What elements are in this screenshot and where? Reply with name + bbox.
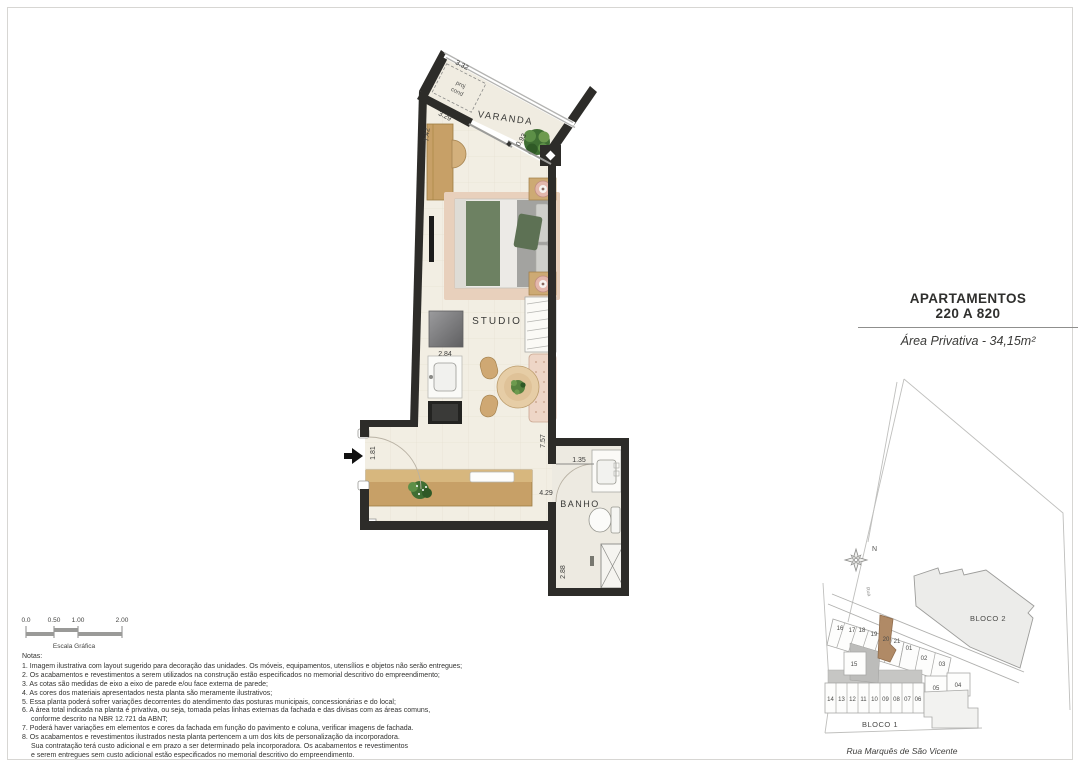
floor-plan-drawing: proj cond [338,24,658,636]
floorplan-page: { "title_block": { "line1": "APARTAMENTO… [0,0,1080,767]
scale-segment [78,632,122,636]
notes-title: Notas: [22,653,582,662]
unit-label: 19 [871,632,878,638]
north-label: N [872,546,877,553]
title-line2: 220 A 820 [858,306,1078,321]
foyer-counter [366,470,532,506]
unit-label: 03 [939,662,946,668]
dim-left-wall: 7.42 [424,128,432,142]
note-line: e serem entregues sem custo adicional es… [22,752,582,761]
dim-kitchen: 2.84 [438,351,452,358]
title-divider [858,327,1078,328]
private-area-label: Área Privativa - 34,15m² [858,334,1078,348]
unit-label: 09 [882,697,889,703]
unit-label: 05 [933,686,940,692]
wall-tv [429,216,434,262]
unit-label: 06 [915,697,922,703]
scale-caption: Escala Gráfica [53,643,96,650]
site-map: Rua N BLOCO 2 [818,370,1080,765]
counter-tray [470,472,514,482]
unit-label: 16 [837,626,844,632]
bathroom-vanity [592,450,621,492]
note-line: 3. As cotas são medidas de eixo a eixo d… [22,681,582,690]
unit-label: 11 [860,697,867,703]
unit-label: 12 [849,697,856,703]
entrance-arrow-icon [344,448,363,464]
unit-label: 04 [955,683,962,689]
scale-tick-label: 1.00 [72,617,85,624]
unit-label: 17 [849,628,856,634]
note-line: conforme descrito na NBR 12.721 da ABNT; [22,716,582,725]
cooktop-glass [432,404,458,421]
unit-label: 01 [906,646,913,652]
note-line: Sua contratação terá custo adicional e e… [22,743,582,752]
unit-label: 18 [859,628,866,634]
unit-label: 13 [838,697,845,703]
unit-label: 20 [883,637,890,643]
note-line: 8. Os acabamentos e revestimentos ilustr… [22,734,582,743]
room-label-studio: STUDIO [472,316,522,327]
rua-access-label: Rua [864,587,872,598]
unit-label: 07 [904,697,911,703]
entrance-door-jamb [358,481,369,490]
unit-label: 02 [921,656,928,662]
title-line1: APARTAMENTOS [858,291,1078,306]
scale-tick-label: 0.50 [48,617,61,624]
dim-bath-width: 1.35 [572,457,586,464]
note-line: 5. Essa planta poderá sofrer variações d… [22,699,582,708]
title-block: APARTAMENTOS 220 A 820 Área Privativa - … [858,291,1078,348]
floor-plan: proj cond [338,24,658,636]
bloco1-label: BLOCO 1 [862,720,898,729]
room-label-banho: BANHO [560,499,600,509]
street-name: Rua Marquês de São Vicente [847,746,958,756]
notes-block: Notas: 1. Imagem ilustrativa com layout … [22,653,582,761]
dim-right-wall: 7.57 [540,434,547,448]
note-line: 2. Os acabamentos e revestimentos a sere… [22,672,582,681]
dim-entrance: 1.81 [370,446,377,460]
scale-tick-label: 2.00 [116,617,129,624]
dim-foyer-length: 4.29 [539,490,553,497]
bed-foot-fold [455,199,466,288]
unit-label: 21 [894,639,901,645]
unit-label: 15 [851,662,858,668]
note-line: 6. A área total indicada na planta é pri… [22,707,582,716]
scale-bar: 0.0 0.50 1.00 2.00 Escala Gráfica [14,612,144,659]
scale-segment [54,628,78,632]
note-line: 1. Imagem ilustrativa com layout sugerid… [22,663,582,672]
scale-segment [26,632,54,636]
bed-runner [466,201,500,286]
unit-label: 08 [893,697,900,703]
unit-label: 10 [871,697,878,703]
note-line: 7. Poderá haver variações em elementos e… [22,725,582,734]
toilet [589,507,620,533]
dim-bath-length: 2.88 [560,565,567,579]
kitchen-appliance [429,311,463,347]
scale-tick-label: 0.0 [21,617,30,624]
bloco2-label: BLOCO 2 [970,614,1006,623]
note-line: 4. As cores dos materiais apresentados n… [22,690,582,699]
kitchen-sink [428,356,462,398]
unit-label: 14 [827,697,834,703]
